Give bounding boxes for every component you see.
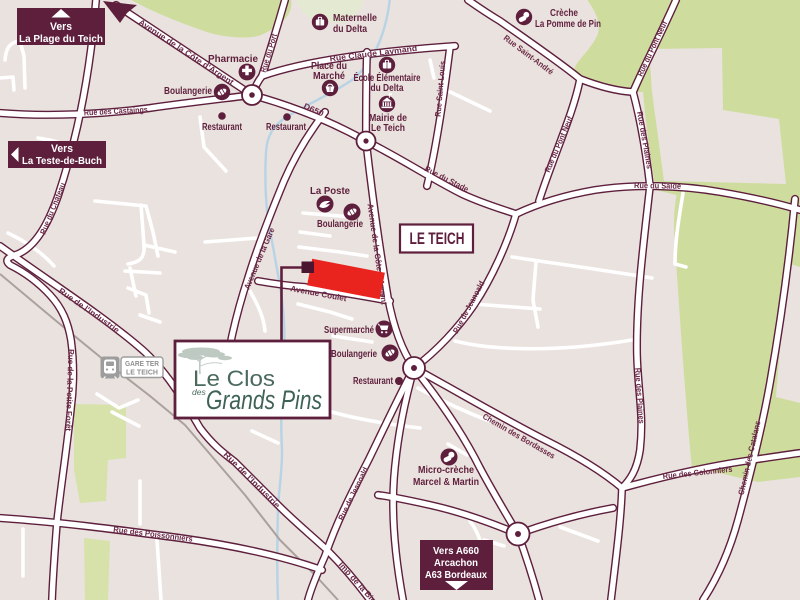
svg-text:Grands Pins: Grands Pins <box>206 385 322 415</box>
svg-text:Boulangerie: Boulangerie <box>164 86 212 97</box>
svg-text:Pharmacie: Pharmacie <box>208 54 258 65</box>
svg-text:La Pomme de Pin: La Pomme de Pin <box>535 19 601 30</box>
svg-text:La Plage du Teich: La Plage du Teich <box>19 33 103 45</box>
svg-text:du Delta: du Delta <box>371 83 404 94</box>
svg-text:Vers A660: Vers A660 <box>433 545 479 557</box>
svg-text:Supermarché: Supermarché <box>324 325 374 336</box>
svg-text:Rue du Salde: Rue du Salde <box>634 181 682 191</box>
svg-text:Le Teich: Le Teich <box>371 123 405 134</box>
svg-text:Restaurant: Restaurant <box>202 122 243 133</box>
svg-text:du Delta: du Delta <box>333 24 367 35</box>
svg-text:Vers: Vers <box>50 21 72 33</box>
svg-text:Vers: Vers <box>51 143 73 155</box>
svg-text:Boulangerie: Boulangerie <box>331 349 377 360</box>
svg-text:A63 Bordeaux: A63 Bordeaux <box>425 569 487 581</box>
svg-text:Restaurant: Restaurant <box>353 376 394 387</box>
svg-text:Marcel & Martin: Marcel & Martin <box>413 477 479 488</box>
svg-text:Arcachon: Arcachon <box>434 557 478 569</box>
svg-text:Restaurant: Restaurant <box>266 122 307 133</box>
svg-text:Maternelle: Maternelle <box>333 13 377 24</box>
svg-text:La Poste: La Poste <box>310 186 350 197</box>
svg-text:Boulangerie: Boulangerie <box>317 219 363 230</box>
svg-text:La Teste-de-Buch: La Teste-de-Buch <box>22 155 102 167</box>
svg-text:des: des <box>192 387 206 397</box>
svg-text:LE TEICH: LE TEICH <box>126 368 158 377</box>
svg-text:LE TEICH: LE TEICH <box>410 230 465 248</box>
svg-text:Crèche: Crèche <box>550 8 578 19</box>
svg-text:Micro-crèche: Micro-crèche <box>418 465 474 476</box>
